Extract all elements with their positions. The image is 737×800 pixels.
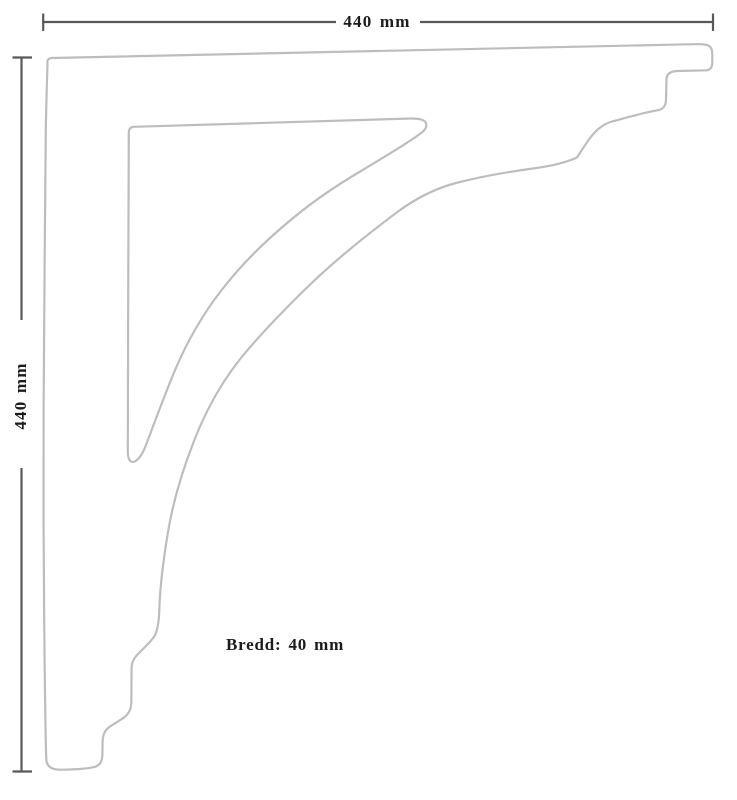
width-note-label: Bredd: 40 mm bbox=[185, 635, 385, 655]
bracket-outer-profile bbox=[43, 44, 712, 770]
top-dimension-label: 440 mm bbox=[317, 12, 437, 32]
drawing-canvas: 440 mm 440 mm Bredd: 40 mm bbox=[0, 0, 737, 800]
left-dimension-label: 440 mm bbox=[11, 336, 31, 456]
technical-drawing bbox=[0, 0, 737, 800]
bracket-inner-cutout bbox=[128, 118, 427, 461]
